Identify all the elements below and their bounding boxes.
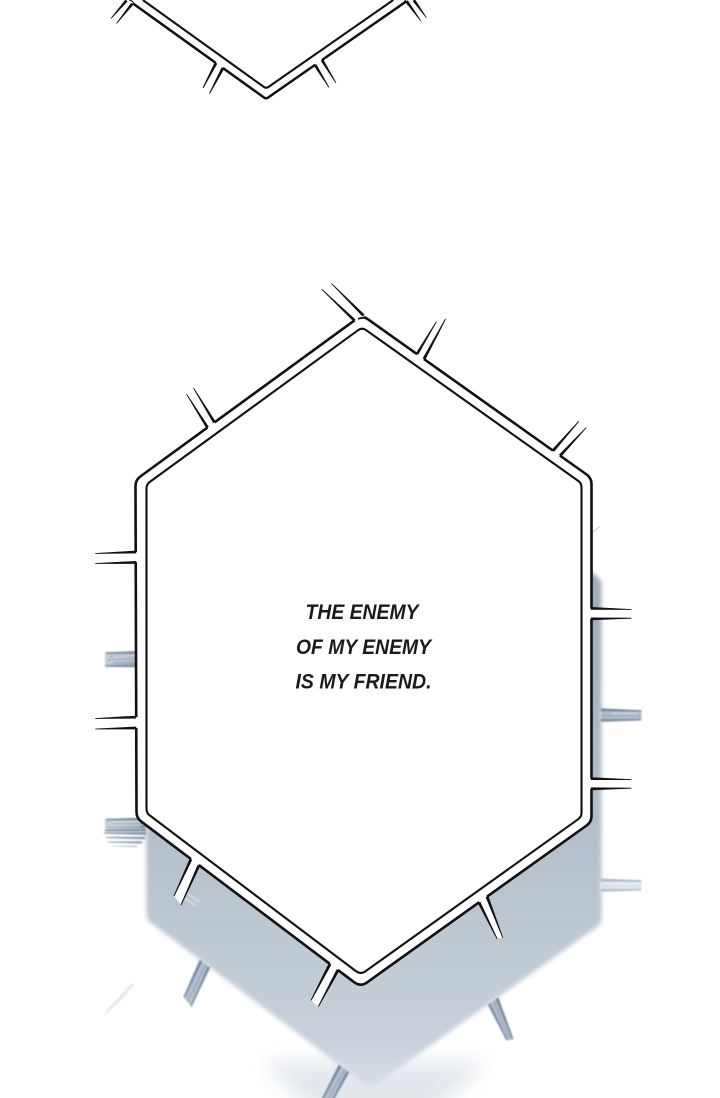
svg-text:THE ENEMY: THE ENEMY: [306, 600, 420, 624]
svg-text:IS MY FRIEND.: IS MY FRIEND.: [296, 669, 432, 693]
svg-text:OF MY ENEMY: OF MY ENEMY: [296, 635, 432, 659]
